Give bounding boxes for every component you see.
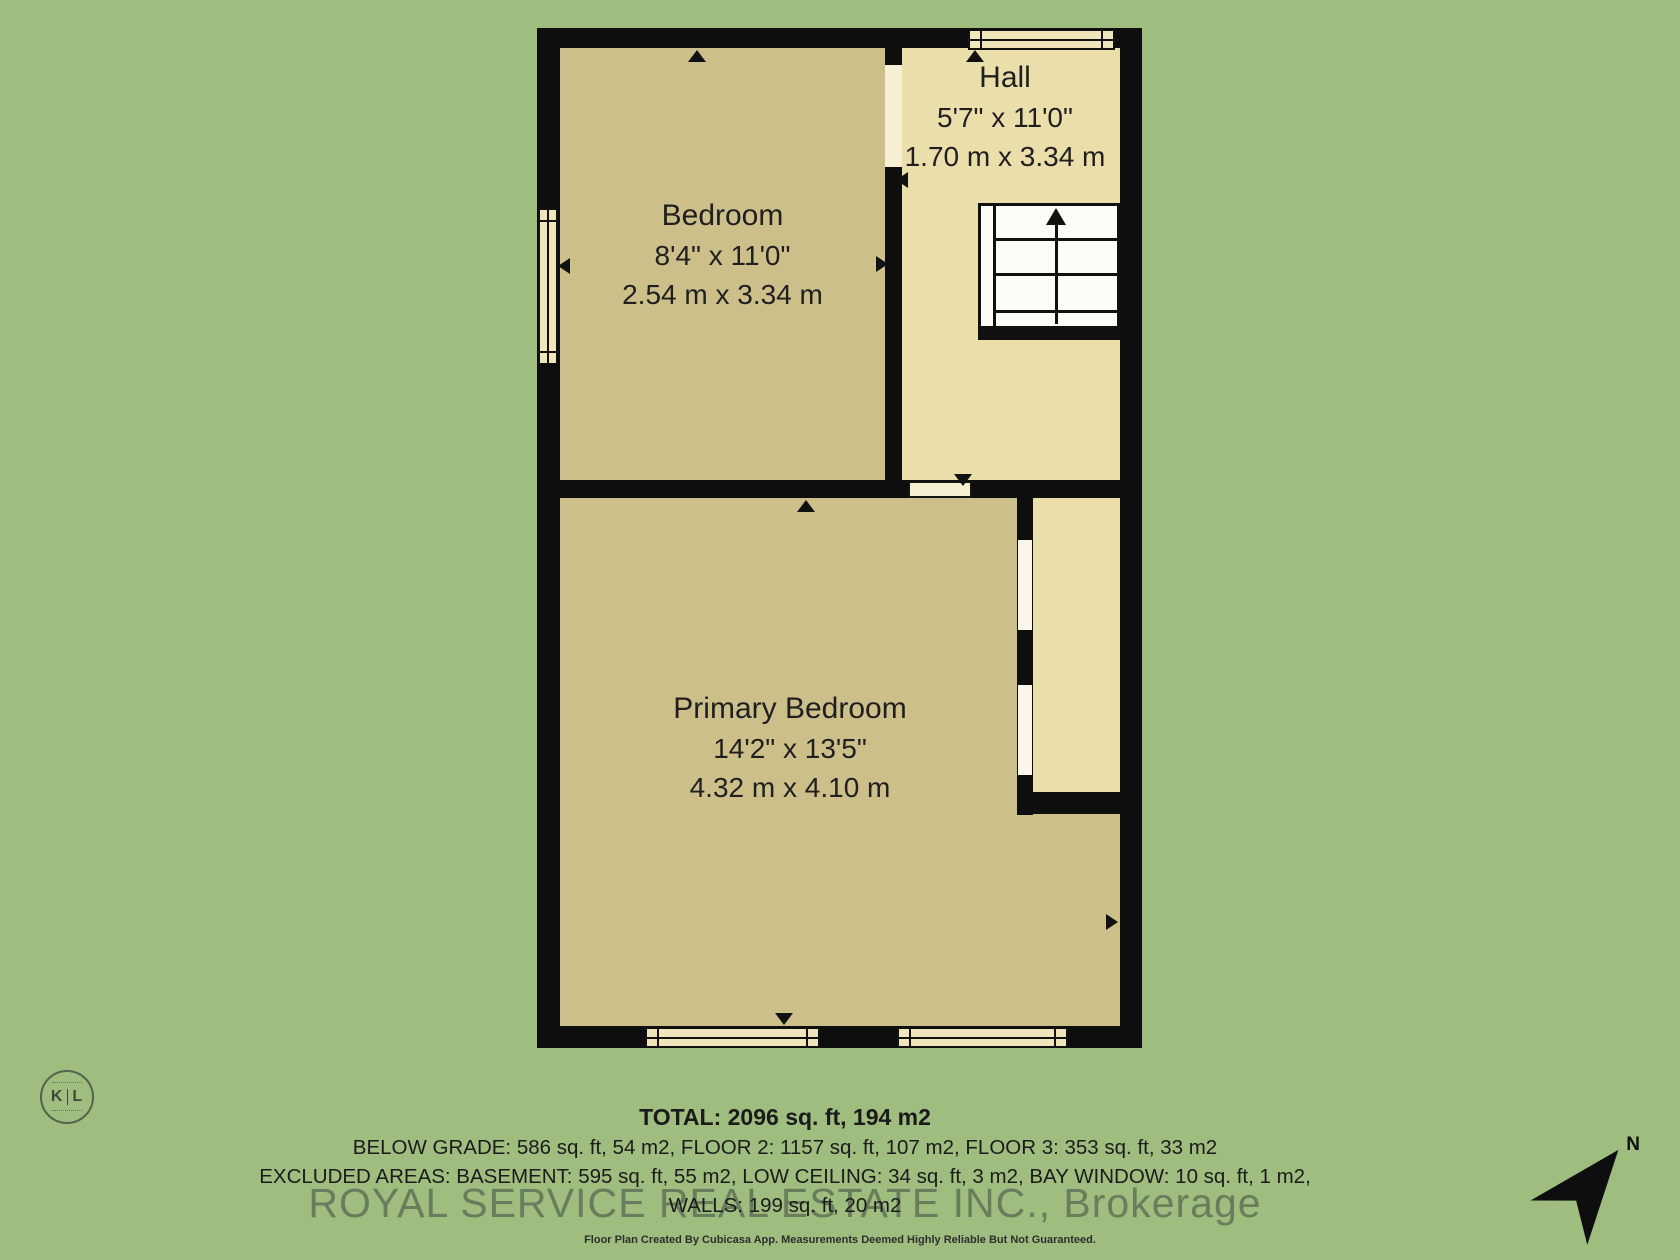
area-summary: TOTAL: 2096 sq. ft, 194 m2 BELOW GRADE: … [105, 1104, 1465, 1218]
wall-closet-bottom [1017, 792, 1142, 814]
wall-left [537, 28, 560, 1048]
staircase [978, 203, 1120, 340]
floor-plan-page: Bedroom 8'4" x 11'0" 2.54 m x 3.34 m Hal… [0, 0, 1680, 1260]
stair-side-stringer [993, 206, 996, 337]
room-dims-m: 4.32 m x 4.10 m [558, 771, 1022, 805]
logo-divider [67, 1089, 68, 1105]
floors-area-line: BELOW GRADE: 586 sq. ft, 54 m2, FLOOR 2:… [105, 1136, 1465, 1160]
room-dims-m: 1.70 m x 3.34 m [885, 140, 1125, 174]
room-name: Primary Bedroom [558, 691, 1022, 727]
total-area-line: TOTAL: 2096 sq. ft, 194 m2 [105, 1104, 1465, 1131]
room-dims-ft: 8'4" x 11'0" [560, 239, 885, 273]
window-primary-bottom-right [897, 1027, 1068, 1048]
room-name: Hall [885, 60, 1125, 96]
north-compass: N [1528, 1128, 1648, 1258]
room-name: Bedroom [560, 198, 885, 234]
room-dims-ft: 5'7" x 11'0" [885, 101, 1125, 135]
marker-mid-door-icon [954, 474, 972, 486]
label-primary-bedroom: Primary Bedroom 14'2" x 13'5" 4.32 m x 4… [558, 691, 1022, 804]
excluded-area-line: EXCLUDED AREAS: BASEMENT: 595 sq. ft, 55… [105, 1165, 1465, 1189]
label-bedroom: Bedroom 8'4" x 11'0" 2.54 m x 3.34 m [560, 198, 885, 311]
north-label: N [1626, 1134, 1640, 1156]
marker-right-wall-icon [1106, 914, 1118, 930]
window-bedroom-left [538, 208, 558, 365]
wall-right [1120, 28, 1142, 1048]
photographer-logo: K L [40, 1070, 94, 1124]
logo-arc-decoration [52, 1110, 82, 1112]
marker-primary-door-icon [797, 500, 815, 512]
window-hall-top [968, 29, 1115, 50]
label-hall: Hall 5'7" x 11'0" 1.70 m x 3.34 m [885, 60, 1125, 173]
stair-direction-line [1055, 214, 1058, 324]
room-dims-ft: 14'2" x 13'5" [558, 732, 1022, 766]
marker-bottom-window-icon [775, 1013, 793, 1025]
stair-up-arrow-icon [1046, 208, 1066, 225]
closet-opening-upper [1018, 540, 1032, 630]
room-closet-alcove [1033, 498, 1120, 792]
logo-letter-k: K [51, 1088, 64, 1106]
room-dims-m: 2.54 m x 3.34 m [560, 278, 885, 312]
marker-hall-door-icon [896, 172, 908, 188]
stair-base-wall [981, 326, 1117, 337]
logo-letter-l: L [72, 1088, 83, 1106]
window-primary-bottom-left [645, 1027, 820, 1048]
marker-top-wall-icon [688, 50, 706, 62]
logo-arc-decoration [52, 1082, 82, 1084]
walls-area-line: WALLS: 199 sq. ft, 20 m2 [105, 1194, 1465, 1218]
disclaimer-text: Floor Plan Created By Cubicasa App. Meas… [0, 1234, 1680, 1246]
wall-middle-divider [537, 480, 1142, 498]
